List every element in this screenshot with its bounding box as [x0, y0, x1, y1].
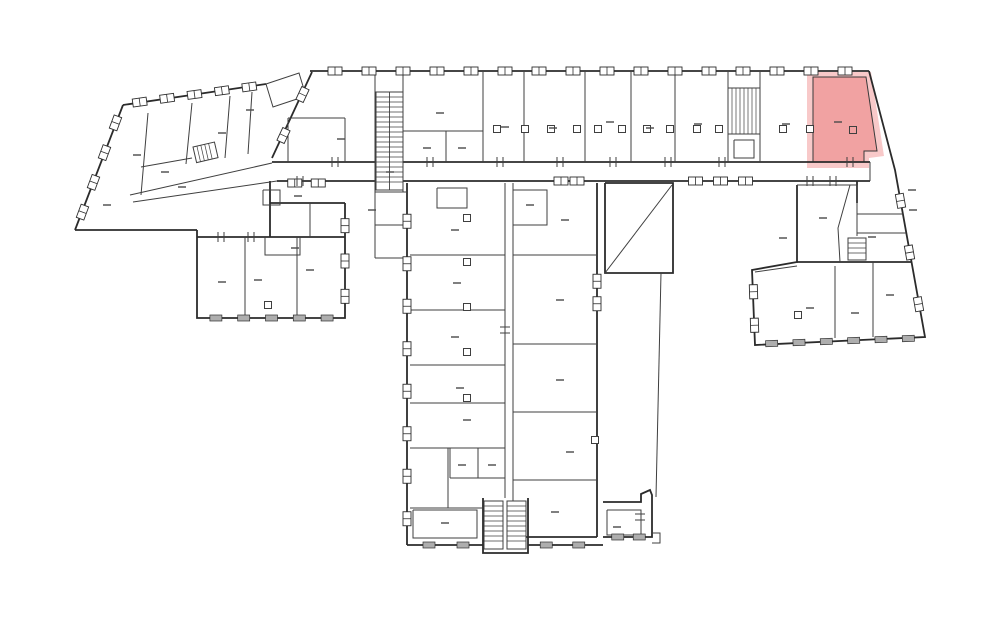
window-icon	[633, 534, 645, 540]
window-icon	[109, 115, 121, 131]
wall-partition	[437, 188, 467, 208]
wall-partition	[513, 190, 547, 225]
window-icon	[570, 177, 584, 185]
wall-partition	[133, 181, 277, 202]
floor-plan-svg	[0, 0, 1000, 624]
window-icon	[600, 67, 614, 75]
window-icon	[904, 245, 914, 260]
wall	[272, 72, 312, 158]
wall-partition	[413, 510, 477, 538]
door-square	[807, 126, 814, 133]
window-mark	[633, 534, 645, 540]
door-square	[595, 126, 602, 133]
window-mark	[848, 337, 860, 343]
window-icon	[749, 285, 757, 299]
window-icon	[321, 315, 333, 321]
window-icon	[875, 336, 887, 342]
door-square	[592, 437, 599, 444]
window-mark	[457, 542, 469, 548]
door-square	[494, 126, 501, 133]
wall-partition	[734, 140, 754, 158]
window-mark	[793, 339, 805, 345]
window-icon	[362, 67, 376, 75]
window-icon	[430, 67, 444, 75]
door-square	[464, 215, 471, 222]
window-icon	[76, 204, 88, 220]
door-square	[716, 126, 723, 133]
door-square	[667, 126, 674, 133]
windows-layer	[76, 67, 923, 548]
floor-plan-page	[0, 0, 1000, 624]
window-icon	[464, 67, 478, 75]
window-icon	[403, 427, 411, 441]
door-square	[850, 127, 857, 134]
window-mark	[293, 315, 305, 321]
window-icon	[238, 315, 250, 321]
window-mark	[820, 338, 832, 344]
wall-partition	[186, 103, 192, 164]
window-icon	[498, 67, 512, 75]
window-icon	[770, 67, 784, 75]
window-icon	[403, 257, 411, 271]
window-icon	[902, 335, 914, 341]
window-icon	[820, 338, 832, 344]
window-icon	[913, 297, 923, 312]
wall-partition	[130, 163, 272, 195]
window-icon	[593, 274, 601, 288]
window-mark	[573, 542, 585, 548]
window-icon	[895, 193, 905, 208]
wall-partition	[225, 96, 230, 158]
door-square	[694, 126, 701, 133]
window-icon	[793, 339, 805, 345]
door-square	[464, 259, 471, 266]
window-icon	[766, 340, 778, 346]
window-mark	[612, 534, 624, 540]
wall-partition	[141, 158, 192, 167]
door-square	[644, 126, 651, 133]
staircase-icon	[507, 501, 526, 549]
window-icon	[804, 67, 818, 75]
window-mark	[540, 542, 552, 548]
window-icon	[403, 214, 411, 228]
window-icon	[311, 179, 325, 187]
window-icon	[288, 179, 302, 187]
door-square	[780, 126, 787, 133]
door-opening-tick	[635, 514, 645, 520]
window-icon	[423, 542, 435, 548]
window-mark	[266, 315, 278, 321]
window-icon	[132, 97, 147, 107]
staircase-icon	[848, 238, 866, 260]
door-square	[464, 304, 471, 311]
window-icon	[266, 315, 278, 321]
window-icon	[848, 337, 860, 343]
window-icon	[634, 67, 648, 75]
window-icon	[296, 86, 309, 102]
window-icon	[403, 299, 411, 313]
window-mark	[766, 340, 778, 346]
window-icon	[328, 67, 342, 75]
door-square	[522, 126, 529, 133]
window-icon	[838, 67, 852, 75]
window-icon	[457, 542, 469, 548]
wall-partition	[248, 92, 252, 154]
staircase-icon	[193, 142, 218, 163]
window-icon	[612, 534, 624, 540]
window-icon	[689, 177, 703, 185]
window-icon	[532, 67, 546, 75]
window-icon	[396, 67, 410, 75]
window-icon	[739, 177, 753, 185]
wall-partition	[141, 113, 148, 195]
window-icon	[593, 297, 601, 311]
window-mark	[238, 315, 250, 321]
window-icon	[573, 542, 585, 548]
window-icon	[540, 542, 552, 548]
window-icon	[403, 469, 411, 483]
door-square	[265, 302, 272, 309]
window-icon	[566, 67, 580, 75]
window-icon	[403, 342, 411, 356]
window-icon	[341, 254, 349, 268]
door-square	[574, 126, 581, 133]
window-icon	[403, 512, 411, 526]
window-icon	[87, 174, 99, 190]
window-mark	[423, 542, 435, 548]
door-square	[464, 395, 471, 402]
window-icon	[403, 384, 411, 398]
door-square	[464, 349, 471, 356]
window-mark	[902, 335, 914, 341]
window-icon	[160, 93, 175, 103]
staircase-icon	[728, 88, 760, 134]
window-mark	[210, 315, 222, 321]
window-icon	[341, 219, 349, 233]
staircase-icon	[484, 501, 503, 549]
staircase-icon	[376, 92, 403, 190]
window-icon	[750, 318, 758, 332]
highlighted-room[interactable]	[813, 77, 877, 162]
door-square	[619, 126, 626, 133]
window-icon	[714, 177, 728, 185]
window-icon	[214, 86, 229, 96]
window-icon	[187, 90, 202, 100]
window-icon	[210, 315, 222, 321]
door-square	[548, 126, 555, 133]
window-icon	[293, 315, 305, 321]
wall-partition	[656, 273, 661, 497]
wall-partition	[605, 185, 672, 273]
wall	[197, 203, 345, 318]
window-mark	[875, 336, 887, 342]
window-icon	[98, 145, 110, 161]
window-icon	[668, 67, 682, 75]
window-icon	[736, 67, 750, 75]
wall-partition	[265, 237, 300, 255]
window-icon	[242, 82, 257, 92]
window-icon	[554, 177, 568, 185]
window-icon	[341, 289, 349, 303]
wall-partition	[652, 533, 660, 543]
door-square	[795, 312, 802, 319]
window-icon	[702, 67, 716, 75]
window-mark	[321, 315, 333, 321]
